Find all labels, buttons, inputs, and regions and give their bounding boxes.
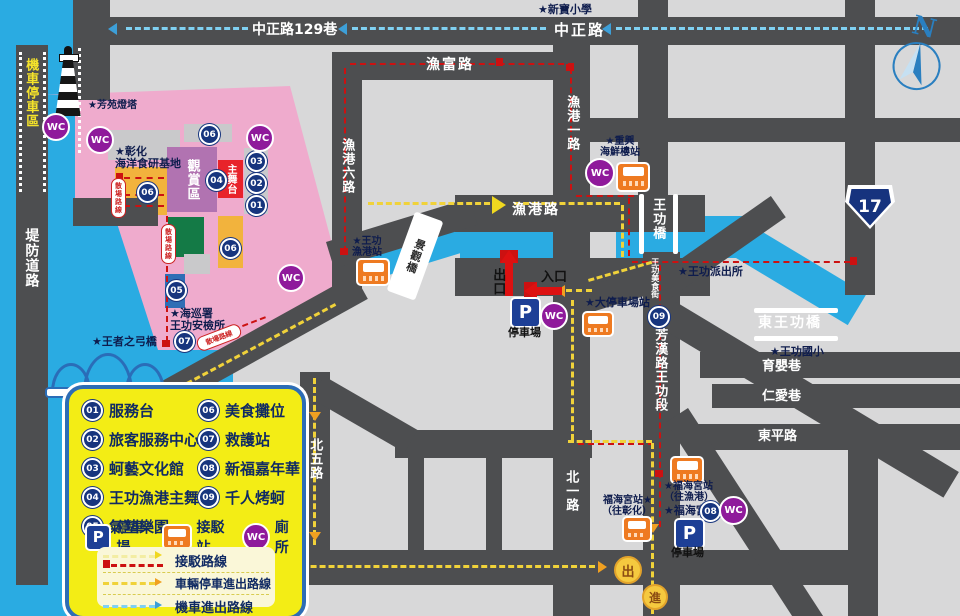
vehicle-line [103,582,155,585]
lighthouse-tower [53,60,83,116]
route-moto-zhongzheng-1 [126,27,248,30]
road-yuying [700,352,960,378]
legend-route-moto-label: 機車進出路線 [175,597,253,616]
changhua-base-label: ★彰化 海洋食研基地 [115,146,181,170]
parking-main-label: 停車場 [508,327,541,339]
legend-badge-01: 01 [82,400,103,421]
yugang1-road-label: 漁港一路 [564,95,578,151]
road-renai [712,384,960,408]
parking-sign-main: P [510,297,541,328]
wc-badge-venue-east: WC [246,124,274,152]
yugang6-road-label: 漁港六路 [339,138,353,194]
route-shuttle-bridge [628,198,630,256]
route-vehicle-bottom-arrow [598,561,607,573]
fanghan-road-label: 芳漢路王功段 [652,328,666,412]
fuhai-port-line1: ★福海宮站 [664,481,714,492]
route-shuttle-southbank [632,261,850,263]
legend-label-03: 蚵藝文化館 [109,458,184,479]
yugang-station-line2: 漁港站 [352,247,382,258]
parking-fuhai-label: 停車場 [671,547,704,559]
zhongxing-station-line1: ★重興 [600,136,640,147]
legend-routes-box: 接駁路線 車輛停車進出路線 機車進出路線 [97,547,275,607]
zhongzheng-label: 中正路 [554,22,605,39]
legend-label-09: 千人烤蚵 [225,487,285,508]
zhongxing-station-line2: 海鮮樓站 [600,147,640,158]
badge-06-west: 06 [137,182,158,203]
legend-item-08: 08 新福嘉年華 [198,458,300,479]
legend-badge-08: 08 [198,458,219,479]
road-dongping [690,424,960,450]
bus-icon-yugang-station [356,258,390,286]
fuhai-changhua-station-label: 福海宮站★ （往彰化） [602,495,652,517]
route-shuttle-mid [578,443,654,445]
shuttle-out-arrow [155,551,162,559]
bus-icon-fuhai-changhua [622,516,652,542]
legend-item-04: 04 王功漁港主舞台 [82,487,214,508]
elementary-label: ★王功國小 [770,346,824,358]
jingguan-bridge-label: 景觀橋 [401,236,428,275]
shuttle-back-line [111,564,163,567]
road-stub-1 [408,448,424,560]
route-vehicle-bridge [621,205,624,257]
beiwu-road-label: 北五路 [307,438,321,480]
legend-route-shuttle-lines [103,553,167,569]
legend-item-01: 01 服務台 [82,400,214,421]
legend-item-06: 06 美食攤位 [198,400,300,421]
wc-badge-venue-west: WC [86,126,114,154]
route-vehicle-beiwu-arrow1 [309,412,321,421]
wanggong-bridge-rail-left [639,194,644,254]
coastguard-label: ★海巡署 王功安檢所 [170,308,225,332]
legend-route-vehicle-label: 車輛停車進出路線 [175,575,271,592]
legend-toilet-label: 廁所 [275,517,302,557]
route-moto-strip-dots-left [19,52,22,192]
route-shuttle-arrow-yugang6 [340,248,348,255]
legend-item-09: 09 千人烤蚵 [198,487,300,508]
yufu-road-label: 漁富路 [426,58,474,73]
legend-box: 01 服務台 02 旅客服務中心 03 蚵藝文化館 04 王功漁港主舞台 05 … [65,385,306,616]
meishijie-label: 王功美食街 [650,258,659,298]
dongping-road-label: 東平路 [758,430,797,444]
road-zhongzheng [73,17,960,45]
legend-badge-07: 07 [198,429,219,450]
lighthouse-lantern [64,46,72,54]
route-moto-zhongzheng-3 [616,27,928,30]
dong-wanggong-rail-top [754,308,838,313]
wc-badge-venue-south: WC [277,264,305,292]
yugang-station-line1: ★王功 [352,236,382,247]
route-vehicle-beiyi-top [571,300,574,440]
legend-badge-03: 03 [82,458,103,479]
dong-wanggong-label: 東王功橋 [758,316,822,331]
badge-05: 05 [166,280,187,301]
legend-label-01: 服務台 [109,400,154,421]
gate-out-circle: 出 [614,556,642,584]
wanggong-bridge-label: 王功橋 [650,198,664,240]
exit-arrow [505,262,513,296]
badge-02: 02 [246,173,267,194]
legend-label-06: 美食攤位 [225,400,285,421]
route-foodstall-line3 [124,205,164,207]
zhongxing-station-label: ★重興 海鮮樓站 [600,136,640,158]
exit-label: 出口 [490,268,504,296]
vehicle-arrow [155,578,162,586]
legend-label-08: 新福嘉年華 [225,458,300,479]
route-vehicle-yugang-west [368,202,490,205]
route-vehicle-entry [566,289,592,292]
route-vehicle-mid [568,440,652,443]
parking-sign-fuhai: P [674,518,705,549]
entry-arrow [536,287,562,295]
legend-route-shuttle: 接駁路線 [103,549,269,573]
badge-06-south: 06 [220,238,241,259]
wc-badge-lighthouse: WC [42,113,70,141]
route-shuttle-yugang-road [576,195,634,197]
legend-label-02: 旅客服務中心 [109,429,199,450]
route-vehicle-beiwu-arrow2 [309,532,321,541]
moto-arrow [155,601,162,609]
badge-03: 03 [246,151,267,172]
legend-route-vehicle-lines [103,579,167,589]
lighthouse-icon [53,46,83,116]
route-shuttle-arrow-yugang1 [566,64,574,71]
xinbao-school-label: ★新寶小學 [538,4,592,16]
police-label: ★王功派出所 [678,266,743,278]
legend-label-07: 救護站 [225,429,270,450]
bus-icon-zhongxing [616,162,650,192]
biglot-station-label: ★大停車場站 [585,297,650,309]
beiyi-road-label: 北一路 [563,470,577,512]
legend-item-02: 02 旅客服務中心 [82,429,214,450]
dispersal-capsule-mid: 散場路線 [161,224,176,264]
wanggong-bridge-rail-right [673,194,678,254]
route-moto-arrow-1 [108,23,117,35]
gate-enter-circle: 進 [642,584,668,610]
legend-route-shuttle-label: 接駁路線 [175,551,227,570]
badge-06-top: 06 [199,124,220,145]
route-shuttle-arrow-yufu [496,58,503,66]
legend-badge-02: 02 [82,429,103,450]
legend-item-03: 03 蚵藝文化館 [82,458,214,479]
legend-badge-09: 09 [198,487,219,508]
wc-badge-fuhai: WC [719,496,748,525]
legend-badge-06: 06 [198,400,219,421]
zhongzheng129-label: 中正路129巷 [252,23,337,38]
route-shuttle-arrow-southbank [850,257,857,265]
fuhai-changhua-line1: 福海宮站★ [602,495,652,506]
lighthouse-label: ★芳苑燈塔 [88,100,137,111]
shuttle-out-line [103,555,155,558]
venue-gray-block2 [184,254,210,274]
map-canvas: 觀賞區 主舞台 [0,0,960,616]
yuying-road-label: 育嬰巷 [762,360,801,374]
legend-col-right: 06 美食攤位 07 救護站 08 新福嘉年華 09 千人烤蚵 [198,400,300,508]
badge-09: 09 [648,306,670,328]
route-moto-arrow-2 [338,23,347,35]
legend-route-vehicle: 車輛停車進出路線 [103,573,269,595]
route-moto-zhongzheng-2 [352,27,546,30]
wc-badge-parking: WC [540,302,568,330]
fuhai-port-station-label: ★福海宮站 （往漁港） [664,481,714,503]
dispersal-capsule-west: 散場路線 [111,178,126,218]
archer-bridge-label: ★王者之弓橋 [92,336,157,348]
road-stub-2 [486,448,502,560]
route-shuttle-arrow-fanghan [655,470,663,477]
route-foodstall-line1 [124,177,164,179]
renai-road-label: 仁愛巷 [762,390,801,404]
badge-01: 01 [246,195,267,216]
difang-road-label: 堤防道路 [23,228,38,288]
yugang-road-label: 漁港路 [512,203,560,218]
legend-route-moto-lines [103,602,167,612]
dong-wanggong-rail-bottom [754,336,838,341]
bus-icon-biglot [582,311,614,337]
highway-17-number: 17 [858,197,882,217]
wc-badge-zhongxing: WC [585,158,615,188]
legend-item-07: 07 救護站 [198,429,300,450]
road-right-vertical [845,0,875,295]
route-vehicle-bigarrow [492,196,506,214]
legend-route-moto: 機車進出路線 [103,595,269,616]
yugang-station-label: ★王功 漁港站 [352,236,382,258]
viewing-zone-label: 觀賞區 [183,159,202,201]
entry-label: 入口 [541,271,567,285]
badge-07: 07 [174,331,195,352]
moto-zone-label: 機車停車區 [23,58,37,128]
moto-line [103,605,155,608]
shuttle-back-arrow [103,560,110,568]
changhua-base-line2: 海洋食研基地 [115,158,181,170]
exit-arrow-head [500,250,518,263]
road-right-vertical2 [848,450,878,616]
bus-icon-fuhai-port [670,456,704,484]
badge-04: 04 [206,170,227,191]
legend-badge-04: 04 [82,487,103,508]
route-dispersal-arrow [162,340,170,347]
compass-n-letter: N [897,9,952,46]
